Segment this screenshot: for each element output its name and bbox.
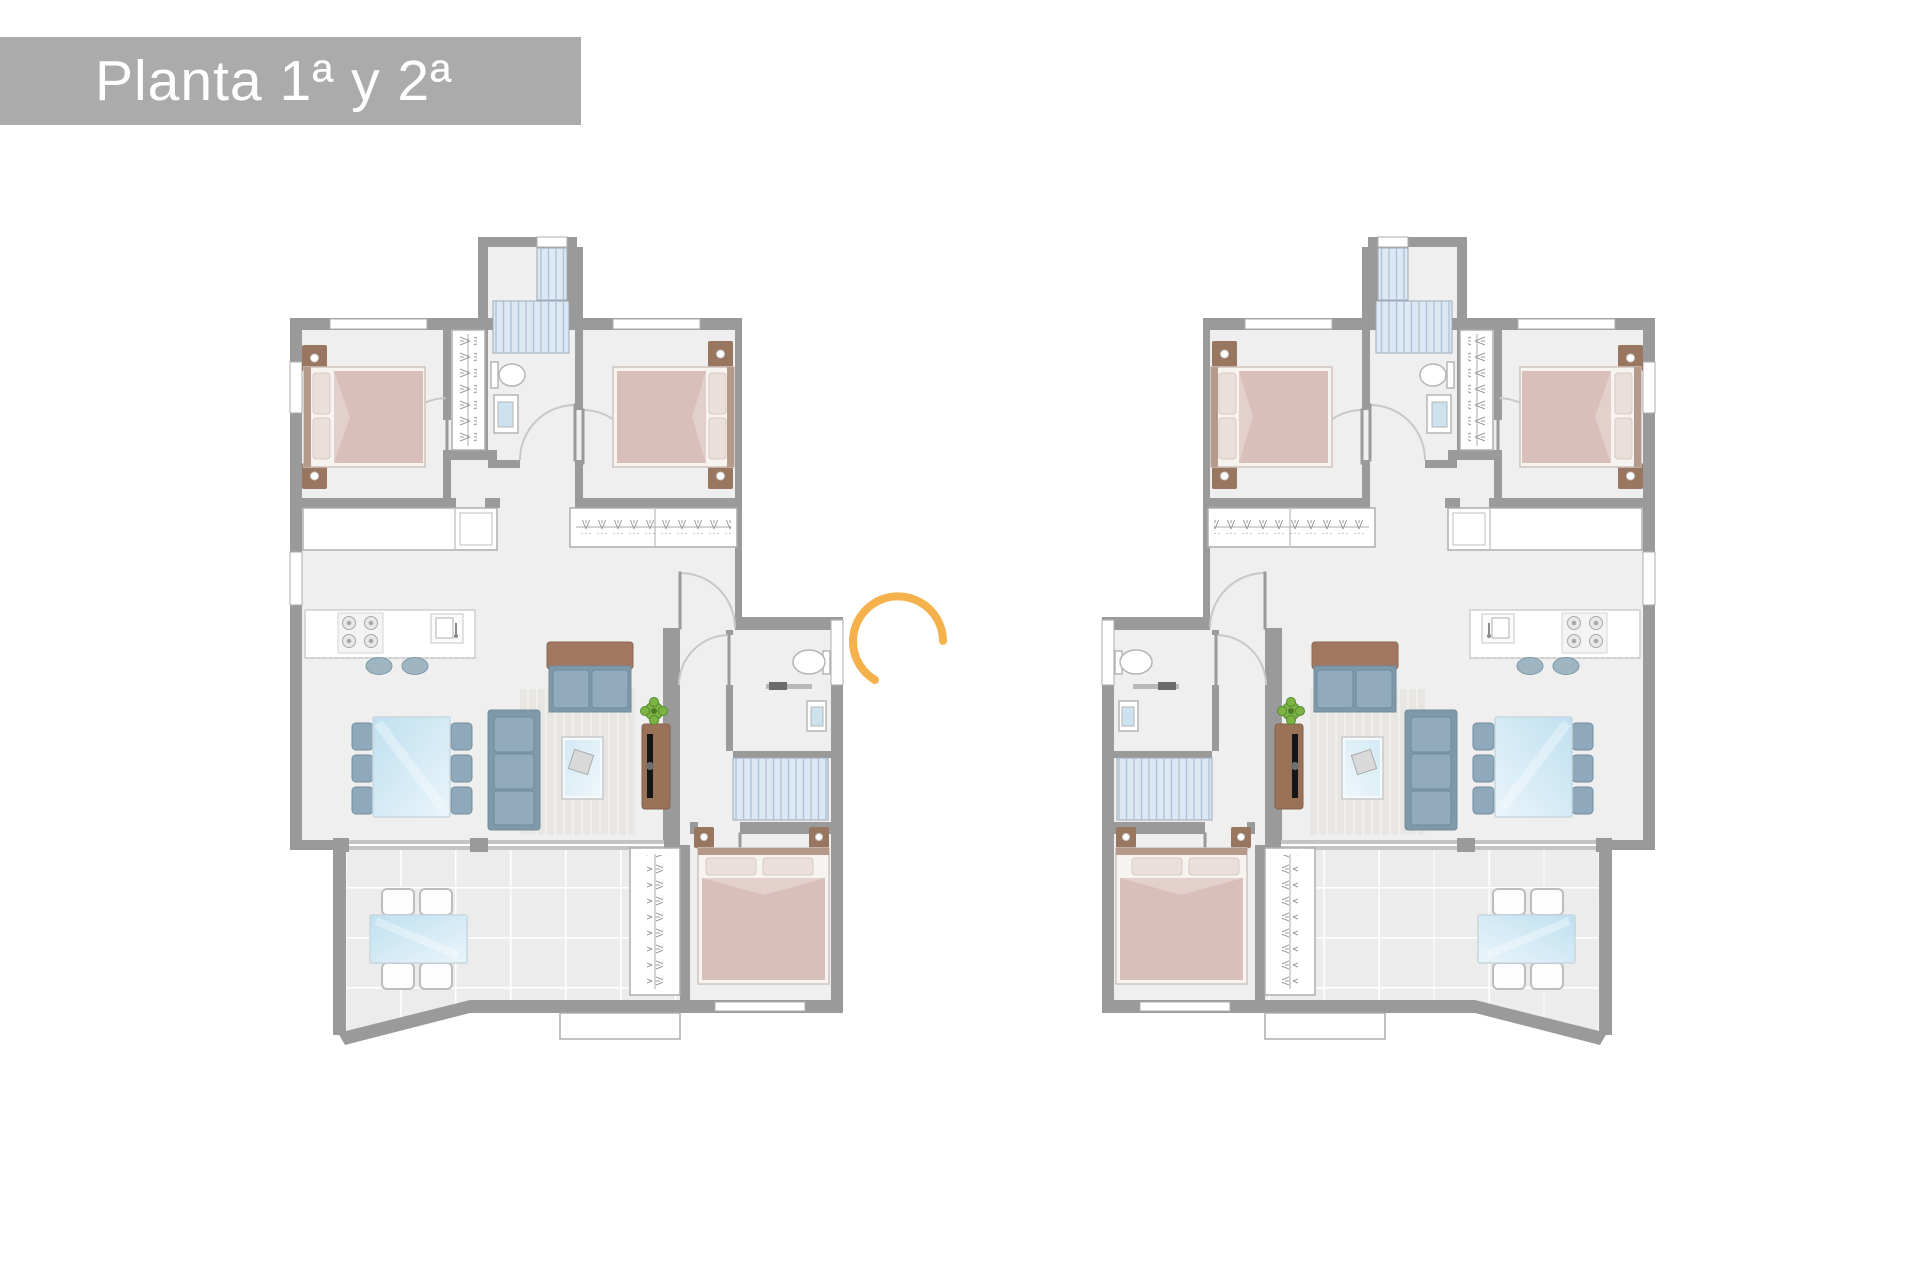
floorplans-svg: [0, 0, 1920, 1280]
floor-plan-left: [290, 237, 843, 1045]
floor-plan-right: [1102, 237, 1655, 1045]
loading-spinner-icon: [853, 596, 943, 680]
floorplan-sheet: Planta 1ª y 2ª: [0, 0, 1920, 1280]
